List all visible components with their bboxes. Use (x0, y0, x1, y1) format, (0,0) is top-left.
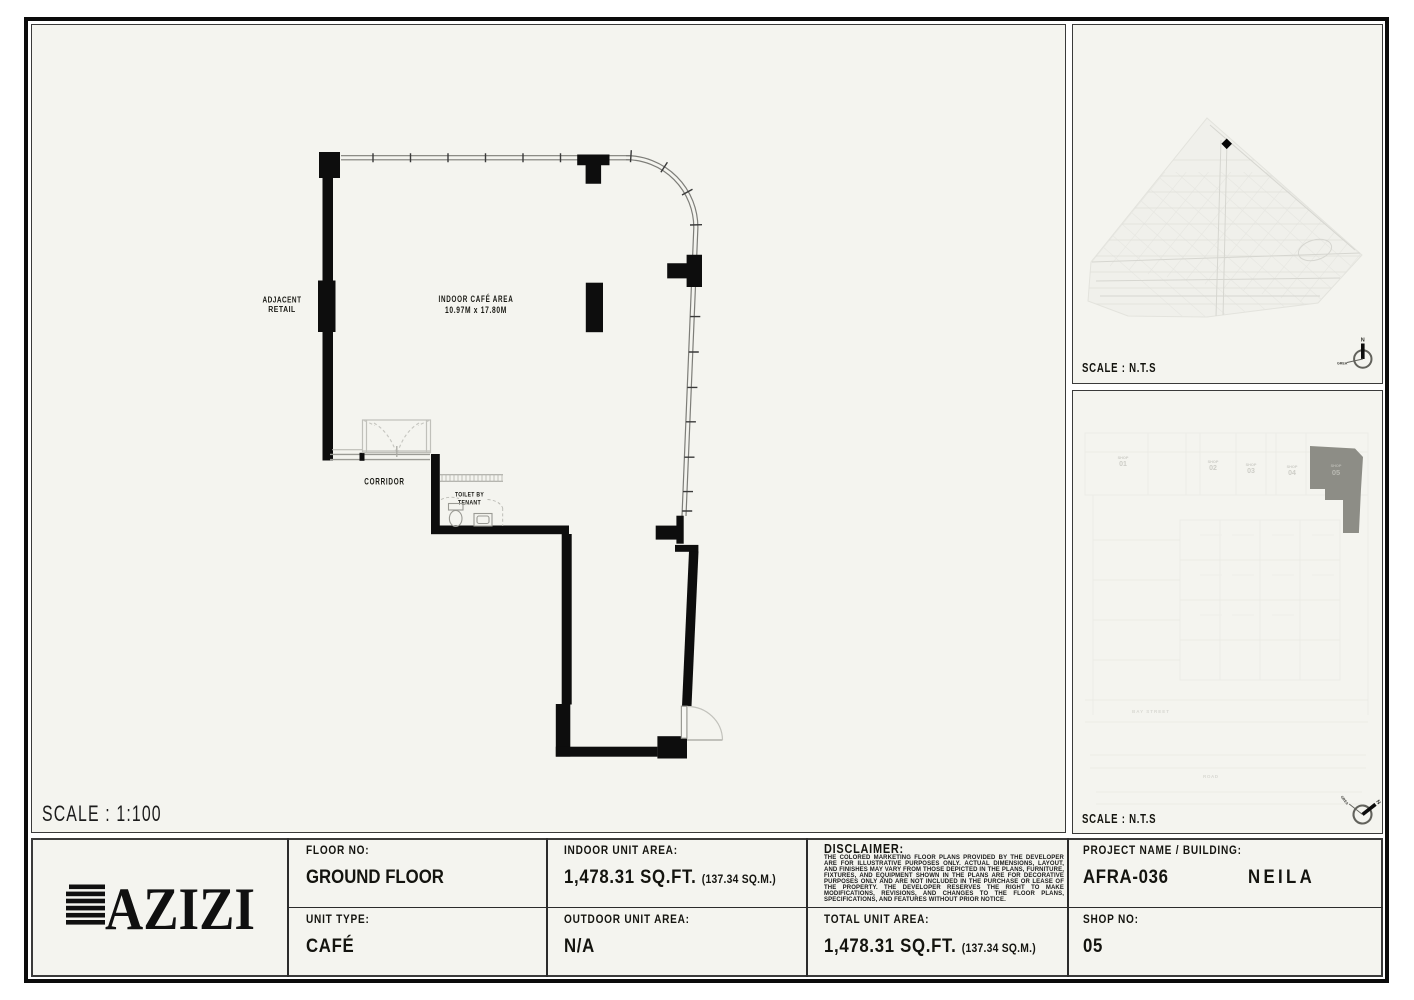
svg-text:TOILET BY: TOILET BY (455, 492, 484, 499)
svg-text:04: 04 (1288, 470, 1296, 477)
svg-text:SHOP: SHOP (1118, 456, 1129, 460)
svg-text:SHOP: SHOP (1208, 460, 1219, 464)
svg-text:ADJACENT: ADJACENT (263, 296, 302, 305)
svg-text:SHOP: SHOP (1287, 465, 1298, 469)
svg-text:RETAIL: RETAIL (268, 305, 296, 314)
svg-text:BAY STREET: BAY STREET (1132, 709, 1170, 714)
svg-text:01: 01 (1119, 461, 1127, 468)
svg-text:ROAD: ROAD (1203, 774, 1219, 779)
svg-text:02: 02 (1209, 465, 1217, 472)
svg-text:N: N (1361, 338, 1365, 344)
svg-text:03: 03 (1247, 468, 1255, 475)
svg-text:CORRIDOR: CORRIDOR (364, 477, 405, 488)
svg-text:GREA: GREA (1337, 362, 1348, 366)
svg-text:05: 05 (1332, 468, 1340, 477)
svg-text:10.97M x 17.80M: 10.97M x 17.80M (445, 305, 507, 315)
svg-text:SHOP: SHOP (1246, 463, 1257, 467)
svg-text:INDOOR CAFÉ AREA: INDOOR CAFÉ AREA (439, 294, 514, 305)
